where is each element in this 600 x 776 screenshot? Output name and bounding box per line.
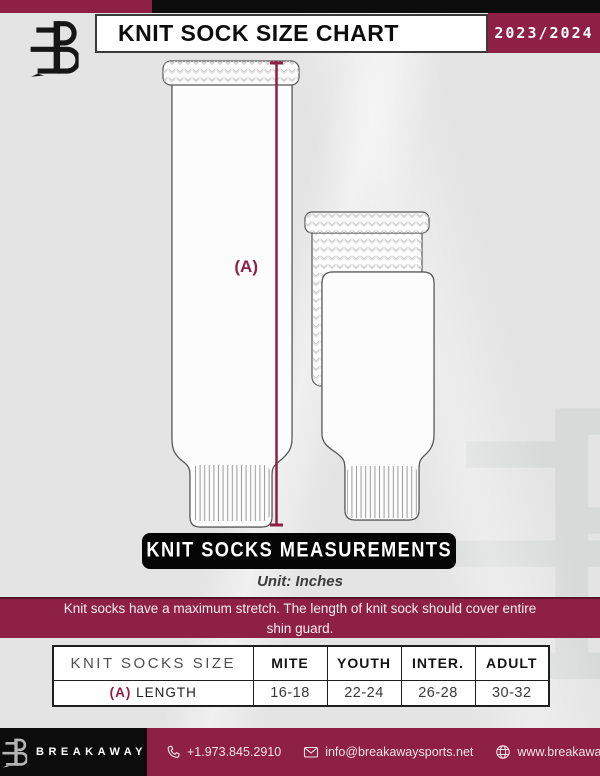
page-title: KNIT SOCK SIZE CHART xyxy=(97,20,399,47)
page-title-box: KNIT SOCK SIZE CHART xyxy=(95,14,488,53)
unit-label: Unit: Inches xyxy=(0,573,600,590)
top-strip xyxy=(0,0,600,13)
length-row-prefix: (A) xyxy=(110,685,132,700)
size-chart-page: (A) KNIT SOCK SIZE CHART 2023/2024 KNIT … xyxy=(0,0,600,776)
footer-email-text: info@breakawaysports.net xyxy=(325,745,473,759)
size-table: KNIT SOCKS SIZE MITE YOUTH INTER. ADULT … xyxy=(52,645,550,707)
length-adult: 30-32 xyxy=(475,680,549,706)
length-youth: 22-24 xyxy=(327,680,401,706)
measurements-banner: KNIT SOCKS MEASUREMENTS xyxy=(142,533,456,569)
length-row-label: (A) LENGTH xyxy=(53,680,253,706)
season-badge: 2023/2024 xyxy=(488,13,600,53)
size-table-header-inter: INTER. xyxy=(401,646,475,680)
measurements-banner-label: KNIT SOCKS MEASUREMENTS xyxy=(146,539,452,564)
season-label: 2023/2024 xyxy=(494,24,593,42)
size-table-header-row: KNIT SOCKS SIZE MITE YOUTH INTER. ADULT xyxy=(53,646,549,680)
size-table-header-label: KNIT SOCKS SIZE xyxy=(53,646,253,680)
footer-email[interactable]: info@breakawaysports.net xyxy=(303,745,473,759)
footer-website[interactable]: www.breakawaysports.net xyxy=(495,744,600,760)
sock-small-front xyxy=(322,272,434,520)
note-banner: Knit socks have a maximum stretch. The l… xyxy=(0,597,600,638)
top-strip-maroon xyxy=(0,0,152,13)
footer-phone-text: +1.973.845.2910 xyxy=(187,745,281,759)
breakaway-logo-icon xyxy=(22,16,84,80)
footer-brand-block: BREAKAWAY xyxy=(0,728,147,776)
phone-icon xyxy=(166,745,181,760)
measure-label-a: (A) xyxy=(234,257,258,276)
length-inter: 26-28 xyxy=(401,680,475,706)
length-mite: 16-18 xyxy=(253,680,327,706)
footer-website-text: www.breakawaysports.net xyxy=(517,745,600,759)
footer-phone[interactable]: +1.973.845.2910 xyxy=(166,745,281,760)
size-table-header-youth: YOUTH xyxy=(327,646,401,680)
footer: BREAKAWAY +1.973.845.2910 info@breakaway… xyxy=(0,728,600,776)
footer-contacts: +1.973.845.2910 info@breakawaysports.net xyxy=(147,728,600,776)
note-text: Knit socks have a maximum stretch. The l… xyxy=(59,599,541,638)
size-table-header-mite: MITE xyxy=(253,646,327,680)
globe-icon xyxy=(495,744,511,760)
size-table-header-adult: ADULT xyxy=(475,646,549,680)
size-table-length-row: (A) LENGTH 16-18 22-24 26-28 30-32 xyxy=(53,680,549,706)
length-row-name: LENGTH xyxy=(136,685,197,700)
sock-large xyxy=(163,61,299,527)
footer-brand-name: BREAKAWAY xyxy=(36,746,147,758)
email-icon xyxy=(303,745,319,759)
footer-logo-icon xyxy=(0,736,28,769)
top-strip-black xyxy=(152,0,600,13)
